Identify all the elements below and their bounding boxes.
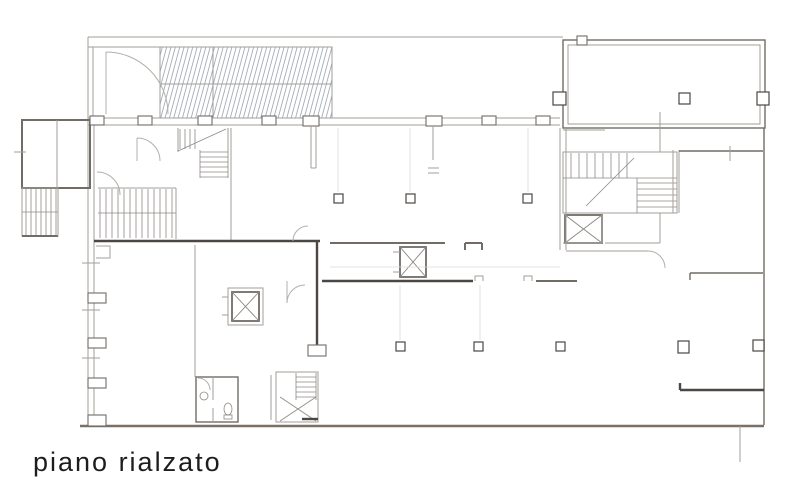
top-right-room xyxy=(563,40,765,128)
upper-staircase xyxy=(178,128,228,178)
center-room-walls xyxy=(231,126,439,240)
main-staircase xyxy=(98,188,176,239)
faint-grid-lines xyxy=(330,128,560,340)
toilet-fixture xyxy=(224,403,232,415)
dark-interior-walls xyxy=(94,241,577,356)
floor-plan-label: piano rialzato xyxy=(33,447,222,478)
bathroom xyxy=(196,377,238,422)
column-grid-top-right-room xyxy=(553,92,769,105)
left-zone-door-arcs xyxy=(97,138,160,195)
sink-fixture xyxy=(200,392,208,400)
annex-staircase xyxy=(22,188,58,236)
column-grid-mid-row xyxy=(334,194,532,203)
floor-plan-svg xyxy=(0,0,800,492)
elevator-shaft-central xyxy=(393,247,426,277)
elevator-shaft-core xyxy=(565,215,602,243)
column-grid-bottom-row xyxy=(396,340,764,353)
central-door-arcs xyxy=(287,226,308,303)
elevator-shaft-left xyxy=(222,288,263,325)
service-staircase xyxy=(271,372,318,422)
entry-door-arc xyxy=(106,52,168,114)
annex-room xyxy=(14,120,90,188)
right-room-walls xyxy=(648,251,764,390)
ramp-hatch xyxy=(160,47,332,118)
floor-plan-document: piano rialzato xyxy=(0,0,800,492)
